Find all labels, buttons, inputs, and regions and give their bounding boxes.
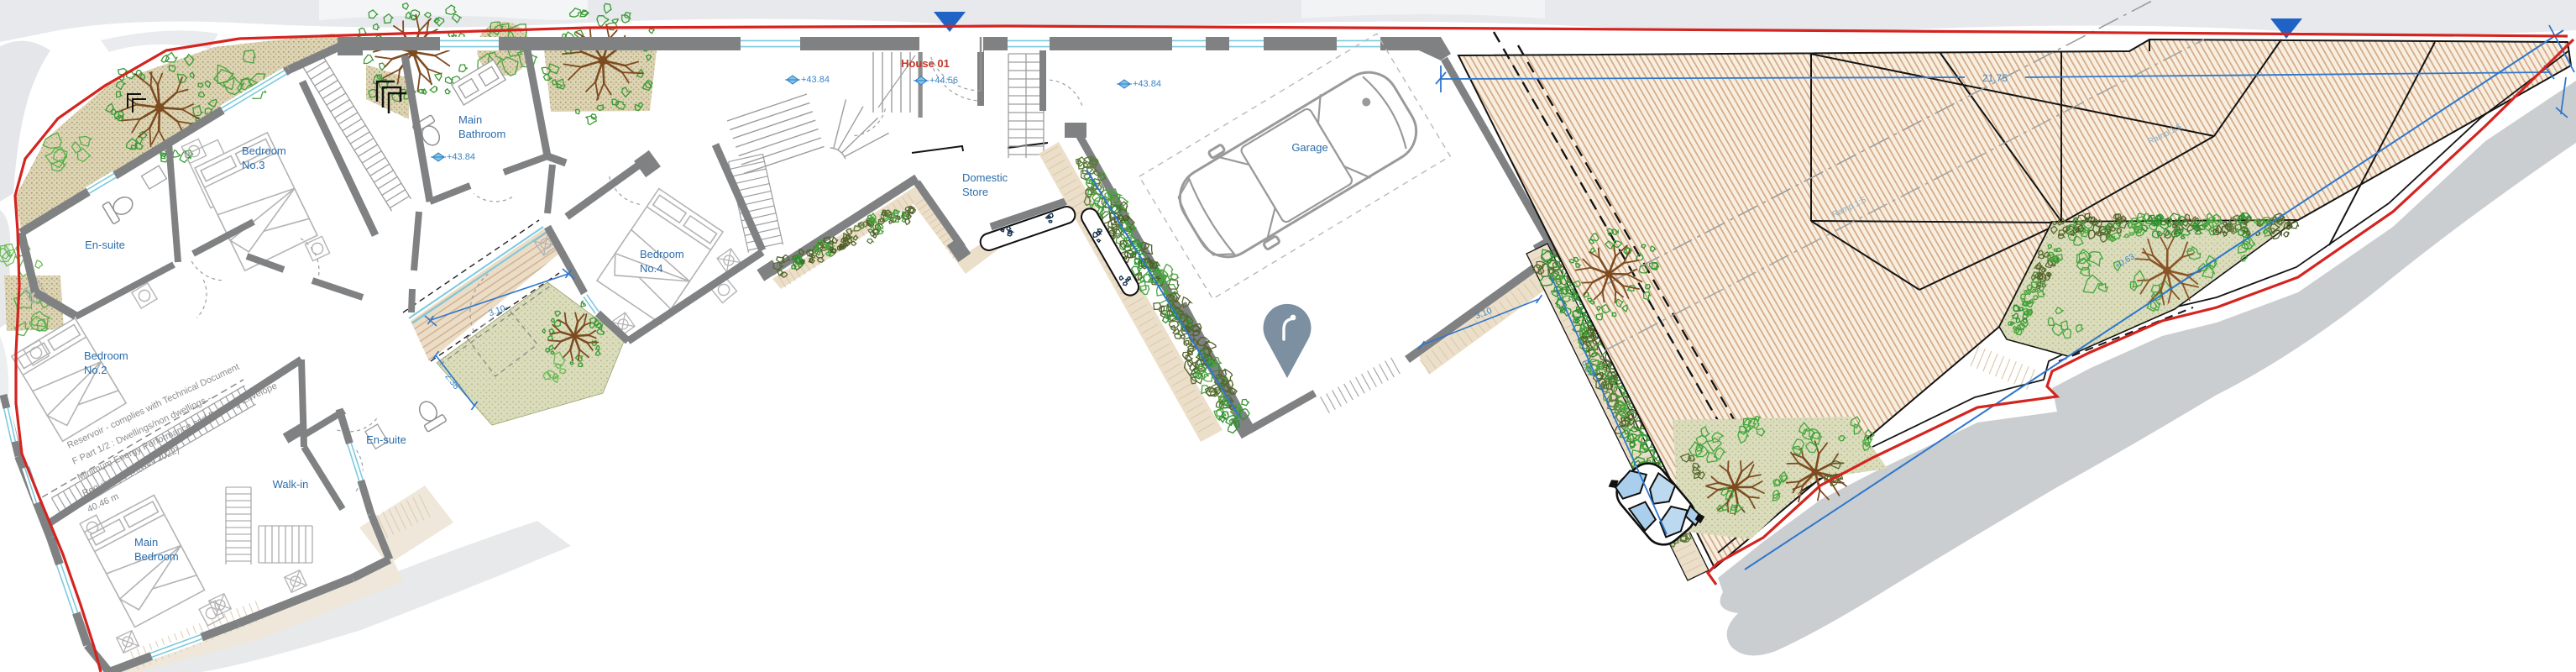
svg-text:Domestic: Domestic <box>962 171 1008 184</box>
svg-text:House 01: House 01 <box>901 57 950 70</box>
svg-text:Main: Main <box>134 536 158 549</box>
svg-text:21.75: 21.75 <box>1982 72 2008 84</box>
svg-text:Bedroom: Bedroom <box>134 550 179 563</box>
svg-text:Bedroom: Bedroom <box>84 349 128 362</box>
svg-text:+44.56: +44.56 <box>929 76 958 86</box>
svg-text:En-suite: En-suite <box>85 239 125 251</box>
svg-text:Garage: Garage <box>1291 141 1327 154</box>
svg-text:+43.84: +43.84 <box>447 152 475 162</box>
svg-text:En-suite: En-suite <box>366 433 406 446</box>
svg-text:Store: Store <box>962 186 988 198</box>
svg-text:No.2: No.2 <box>84 364 107 376</box>
svg-text:Main: Main <box>458 113 482 126</box>
svg-text:No.3: No.3 <box>242 159 264 171</box>
svg-text:Walk-in: Walk-in <box>273 478 309 491</box>
svg-text:Bedroom: Bedroom <box>242 144 286 157</box>
svg-text:Bathroom: Bathroom <box>458 128 505 140</box>
svg-text:+43.84: +43.84 <box>801 75 830 85</box>
svg-text:No.4: No.4 <box>640 262 662 275</box>
svg-text:Bedroom: Bedroom <box>640 248 684 260</box>
svg-text:+43.84: +43.84 <box>1133 79 1161 89</box>
